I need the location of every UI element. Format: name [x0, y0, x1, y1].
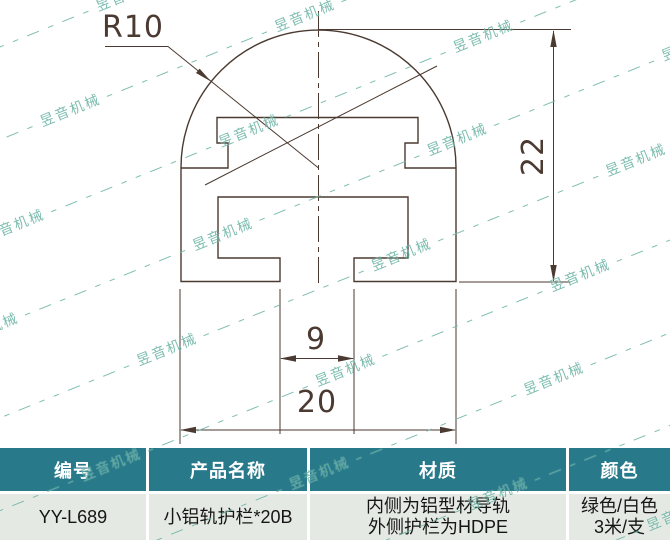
dim-arrow-height-top [550, 30, 556, 47]
color-line-1: 绿色/白色 [581, 496, 658, 517]
construction-line [205, 66, 437, 185]
dim-arrow-slot-left [280, 355, 296, 361]
width-dimension-label: 20 [297, 385, 337, 420]
header-cell-number: 编号 [0, 448, 146, 491]
dim-arrow-height-bottom [550, 265, 556, 282]
radius-dimension-label: R10 [102, 10, 164, 45]
page: R10 22 9 20 编号 产品名称 材质 颜色 YY-L689 小铝轨护栏*… [0, 0, 670, 540]
number-value: YY-L689 [39, 507, 107, 528]
header-cell-material: 材质 [310, 448, 566, 491]
material-line-1: 内侧为铝型材导轨 [366, 496, 510, 517]
product-name-value: 小铝轨护栏*20B [163, 507, 292, 528]
slot-width-dimension-label: 9 [306, 322, 326, 357]
dimension-lines [181, 31, 554, 430]
color-line-2: 3米/支 [594, 517, 645, 538]
radius-leader-line [105, 47, 319, 169]
leader-arrowhead [196, 69, 211, 82]
dim-arrow-width-left [180, 427, 196, 433]
value-cell-color: 绿色/白色 3米/支 [569, 494, 670, 540]
material-line-2: 外侧护栏为HDPE [368, 517, 508, 538]
header-cell-color: 颜色 [569, 448, 670, 491]
extension-lines [180, 30, 571, 445]
technical-drawing: R10 22 9 20 [0, 0, 670, 448]
dim-arrow-width-right [440, 427, 456, 433]
value-cell-product-name: 小铝轨护栏*20B [149, 494, 307, 540]
spec-table: 编号 产品名称 材质 颜色 YY-L689 小铝轨护栏*20B 内侧为铝型材导轨… [0, 448, 670, 540]
height-dimension-label: 22 [516, 136, 551, 176]
dim-arrow-slot-right [338, 355, 354, 361]
value-cell-material: 内侧为铝型材导轨 外侧护栏为HDPE [310, 494, 566, 540]
value-cell-number: YY-L689 [0, 494, 146, 540]
header-cell-product-name: 产品名称 [149, 448, 307, 491]
